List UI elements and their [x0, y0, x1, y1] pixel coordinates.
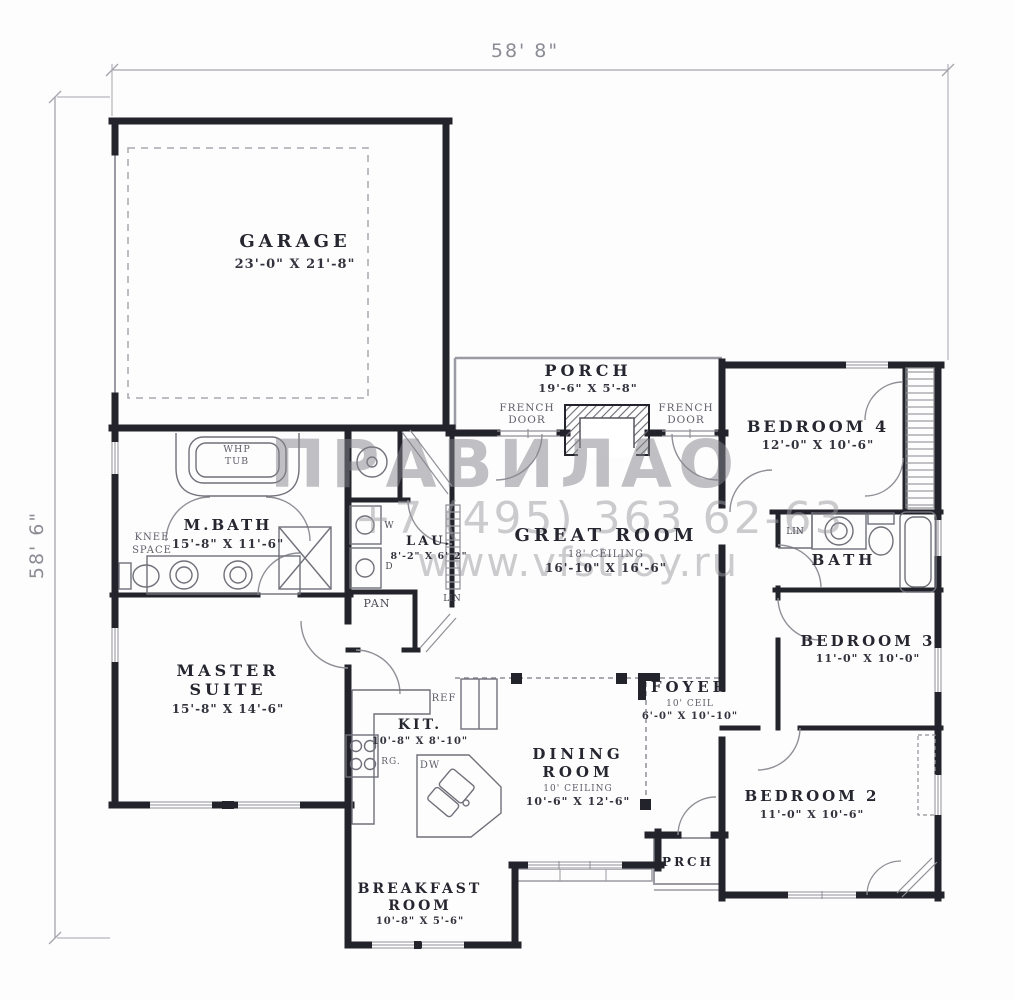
master-bath-label: M.BATH	[184, 516, 273, 534]
master-bath-size: 15'-8" X 11'-6"	[172, 537, 285, 551]
bedroom3-label: BEDROOM 3	[801, 632, 936, 650]
master-suite-label-1: MASTER	[176, 661, 279, 680]
laundry-size: 8'-2" X 6'-2"	[390, 551, 467, 562]
bedroom2-label: BEDROOM 2	[745, 787, 880, 805]
french-door-left-label-1: FRENCH	[499, 402, 554, 414]
breakfast-label-2: ROOM	[388, 898, 452, 914]
dryer-label: D	[385, 562, 392, 572]
french-door-left-label-2: DOOR	[508, 414, 546, 426]
dimension-left-label: 58' 6"	[26, 511, 48, 579]
great-room-size: 16'-10" X 16'-6"	[545, 561, 667, 575]
bedroom3-size: 11'-0" X 10'-0"	[816, 652, 920, 665]
master-suite-label-2: SUITE	[189, 680, 266, 699]
french-door-right-label-2: DOOR	[667, 414, 705, 426]
knee-space-label-1: KNEE	[135, 532, 170, 543]
bedroom4-size: 12'-0" X 10'-6"	[762, 438, 875, 452]
foyer-label: FOYER	[651, 678, 729, 696]
washer-label: W	[384, 521, 394, 531]
dining-label-1: DINING	[532, 745, 623, 763]
garage-label: GARAGE	[239, 231, 350, 252]
great-room-ceiling: 18' CEILING	[568, 549, 644, 560]
garage-size: 23'-0" X 21'-8"	[235, 257, 356, 272]
kitchen-fixtures	[346, 679, 501, 837]
whp-tub-label-1: WHP	[223, 444, 250, 455]
laundry-label: LAU.	[406, 534, 452, 549]
garage-door	[115, 148, 368, 398]
range-label: RG.	[381, 757, 401, 767]
bath-linen-label: LIN	[786, 527, 804, 537]
front-porch-label: PRCH	[662, 855, 714, 869]
dining-label-2: ROOM	[542, 763, 613, 781]
whp-tub-label-2: TUB	[225, 456, 249, 467]
knee-space-label-2: SPACE	[132, 545, 172, 556]
bath-label: BATH	[812, 551, 877, 569]
porch-label: PORCH	[544, 361, 631, 380]
kitchen-size: 10'-8" X 8'-10"	[372, 736, 468, 747]
bedroom2-size: 11'-0" X 10'-6"	[760, 808, 864, 821]
foyer-size: 6'-0" X 10'-10"	[642, 711, 738, 722]
dishwasher-label: DW	[420, 760, 440, 771]
pantry-label: PAN	[364, 597, 391, 610]
ref-label: REF	[432, 693, 457, 704]
bedroom4-label: BEDROOM 4	[747, 417, 889, 436]
laundry-linen-label: LIN	[443, 594, 461, 604]
great-room-label: GREAT ROOM	[515, 525, 698, 546]
french-door-right-label-1: FRENCH	[658, 402, 713, 414]
kitchen-label: KIT.	[398, 717, 442, 733]
breakfast-size: 10'-8" X 5'-6"	[376, 916, 464, 927]
foyer-ceiling: 10' CEIL	[666, 699, 714, 709]
dining-size: 10'-6" X 12'-6"	[526, 795, 630, 808]
dimension-top-label: 58' 8"	[491, 40, 559, 62]
porch-size: 19'-6" X 5'-8"	[538, 381, 638, 395]
master-suite-size: 15'-8" X 14'-6"	[172, 702, 285, 716]
breakfast-label-1: BREAKFAST	[358, 881, 483, 897]
floor-plan-canvas: 58' 8" 58' 6"	[0, 0, 1014, 1000]
dining-ceiling: 10' CEILING	[543, 784, 612, 794]
watermark-logo: ПРАВИЛАО	[270, 426, 740, 503]
